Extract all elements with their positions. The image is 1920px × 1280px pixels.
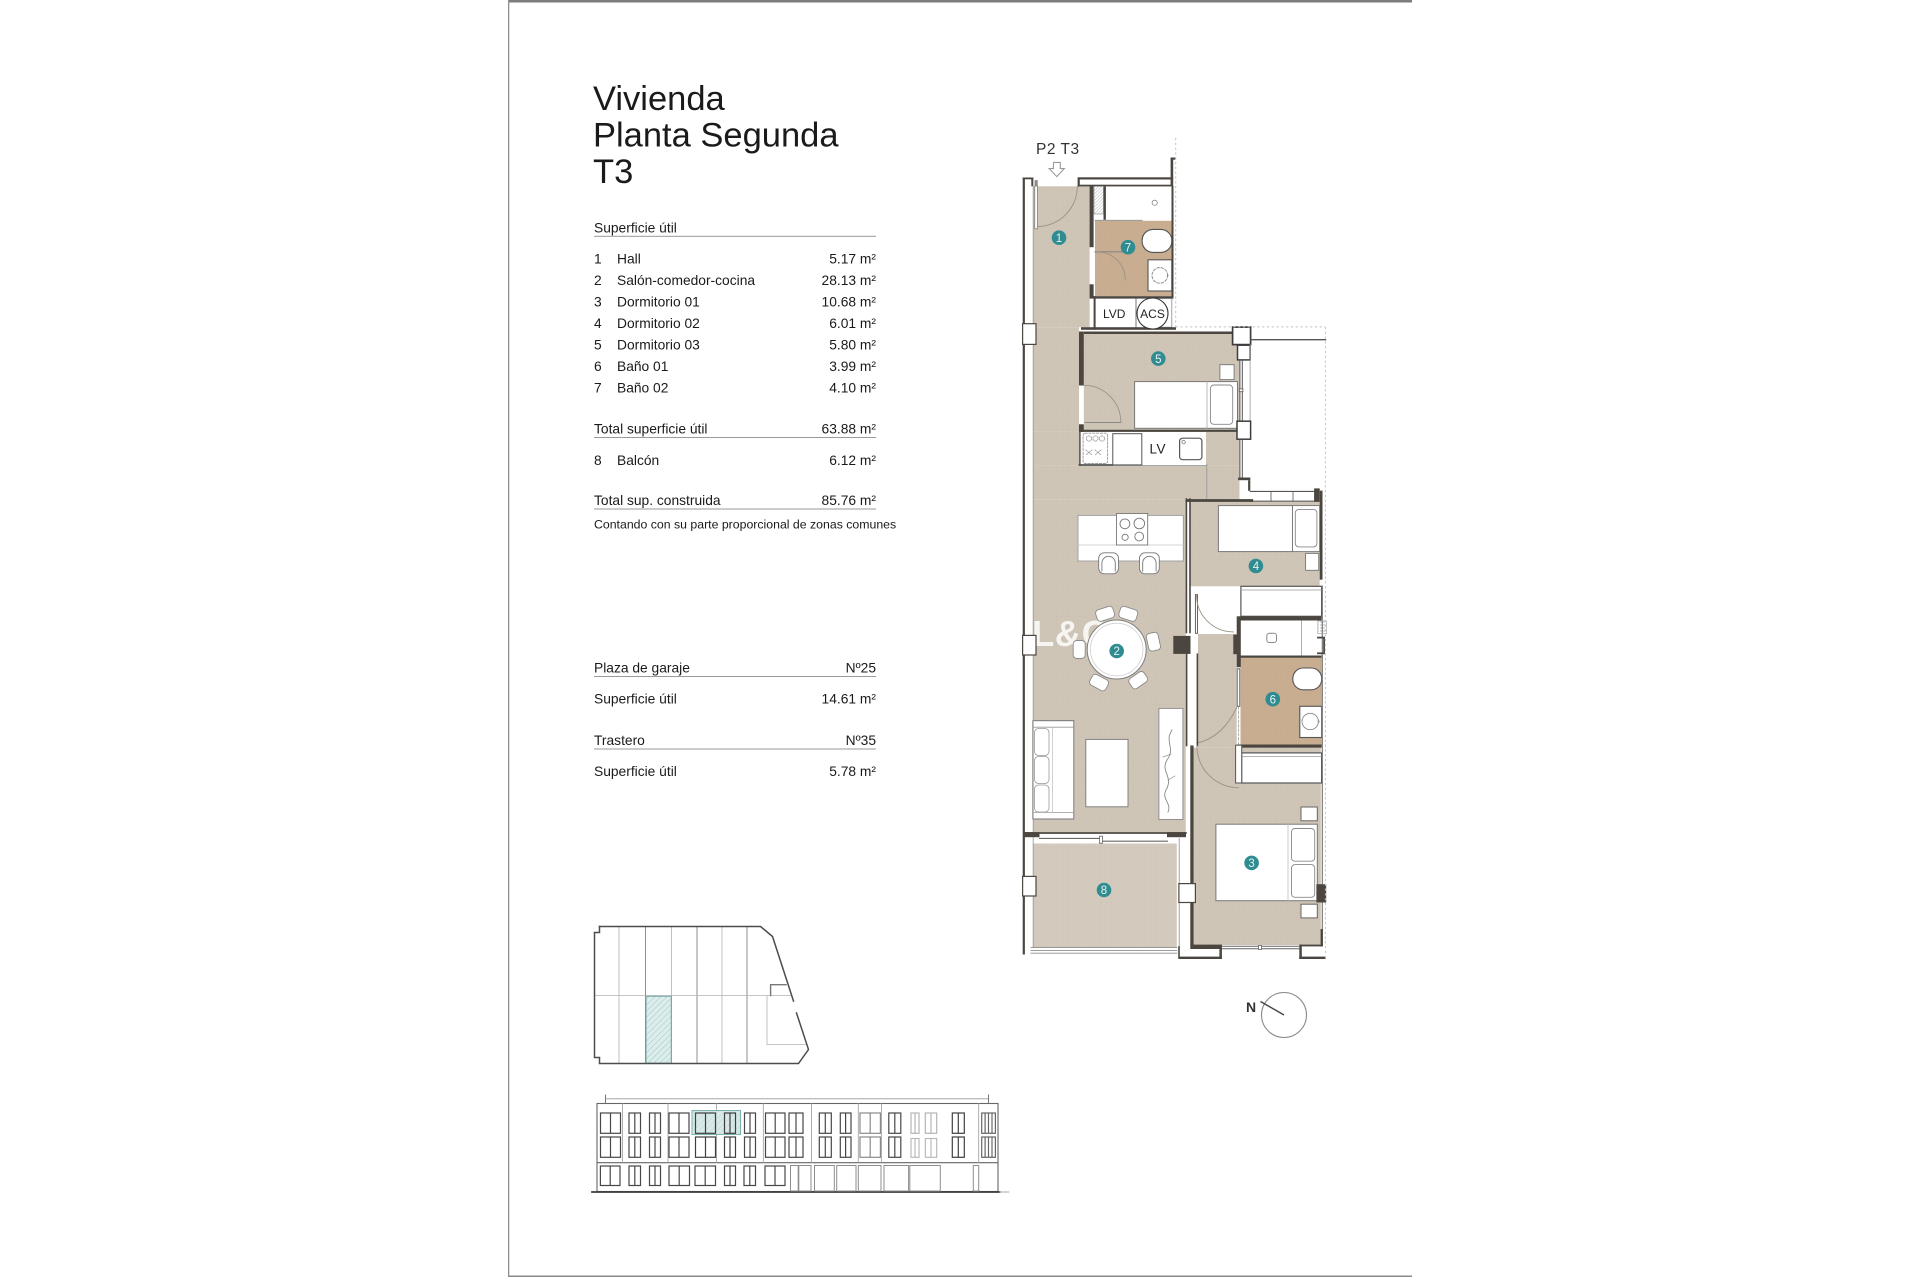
svg-text:Total superficie útil: Total superficie útil: [594, 422, 708, 437]
svg-text:2: 2: [1113, 646, 1119, 658]
svg-text:7: 7: [594, 381, 602, 396]
svg-text:5.17 m²: 5.17 m²: [829, 252, 876, 267]
svg-text:3: 3: [1248, 858, 1254, 870]
svg-text:Trastero: Trastero: [594, 733, 645, 748]
svg-text:2: 2: [594, 273, 602, 288]
svg-text:Dormitorio 01: Dormitorio 01: [617, 295, 700, 310]
svg-text:3: 3: [594, 295, 602, 310]
svg-text:Dormitorio 02: Dormitorio 02: [617, 316, 700, 331]
svg-text:Superficie útil: Superficie útil: [594, 221, 677, 236]
svg-text:Dormitorio 03: Dormitorio 03: [617, 338, 700, 353]
svg-text:N: N: [1246, 999, 1256, 1015]
svg-text:Baño 02: Baño 02: [617, 381, 668, 396]
svg-text:LV: LV: [1150, 442, 1167, 457]
svg-text:6: 6: [1270, 694, 1276, 706]
svg-text:P2 T3: P2 T3: [1036, 141, 1080, 158]
svg-text:Baño 01: Baño 01: [617, 359, 668, 374]
svg-text:5: 5: [594, 338, 602, 353]
svg-text:Salón-comedor-cocina: Salón-comedor-cocina: [617, 273, 755, 288]
svg-text:Hall: Hall: [617, 252, 641, 267]
svg-text:7: 7: [1125, 242, 1131, 254]
svg-text:1: 1: [1056, 233, 1062, 245]
svg-text:Balcón: Balcón: [617, 453, 659, 468]
svg-text:5.78 m²: 5.78 m²: [829, 764, 876, 779]
svg-text:5: 5: [1155, 354, 1161, 366]
svg-text:Planta Segunda: Planta Segunda: [593, 117, 839, 155]
svg-text:6.12 m²: 6.12 m²: [829, 453, 876, 468]
svg-text:4: 4: [1253, 561, 1260, 573]
svg-text:Superficie útil: Superficie útil: [594, 692, 677, 707]
svg-text:Nº25: Nº25: [846, 661, 877, 676]
svg-text:6.01 m²: 6.01 m²: [829, 316, 876, 331]
svg-text:Plaza de garaje: Plaza de garaje: [594, 661, 690, 676]
svg-text:Total sup. construida: Total sup. construida: [594, 493, 721, 508]
svg-text:Superficie útil: Superficie útil: [594, 764, 677, 779]
svg-text:28.13 m²: 28.13 m²: [822, 273, 877, 288]
svg-text:Vivienda: Vivienda: [593, 80, 726, 118]
svg-text:LVD: LVD: [1103, 307, 1126, 321]
svg-text:8: 8: [1101, 885, 1107, 897]
svg-text:Nº35: Nº35: [846, 733, 877, 748]
svg-text:10.68 m²: 10.68 m²: [822, 295, 877, 310]
svg-text:8: 8: [594, 453, 602, 468]
svg-text:63.88 m²: 63.88 m²: [822, 422, 877, 437]
svg-text:3.99 m²: 3.99 m²: [829, 359, 876, 374]
svg-text:5.80 m²: 5.80 m²: [829, 338, 876, 353]
svg-text:6: 6: [594, 359, 602, 374]
svg-text:ACS: ACS: [1140, 307, 1165, 321]
svg-text:14.61 m²: 14.61 m²: [822, 692, 877, 707]
svg-text:1: 1: [594, 252, 602, 267]
svg-text:4: 4: [594, 316, 602, 331]
svg-text:4.10 m²: 4.10 m²: [829, 381, 876, 396]
svg-text:T3: T3: [593, 153, 633, 191]
svg-text:Contando con su parte proporci: Contando con su parte proporcional de zo…: [594, 518, 896, 532]
svg-text:85.76 m²: 85.76 m²: [822, 493, 877, 508]
